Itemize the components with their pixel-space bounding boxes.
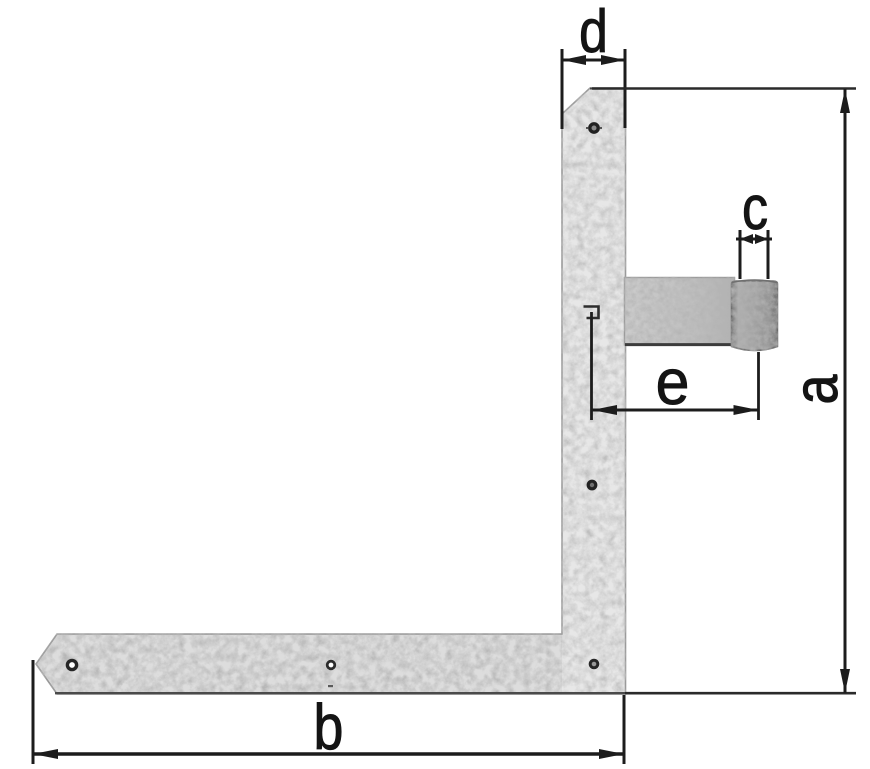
- svg-text:a: a: [782, 374, 851, 405]
- svg-text:c: c: [742, 174, 768, 243]
- svg-text:b: b: [314, 691, 344, 764]
- svg-text:d: d: [579, 0, 608, 64]
- svg-text:e: e: [656, 347, 690, 419]
